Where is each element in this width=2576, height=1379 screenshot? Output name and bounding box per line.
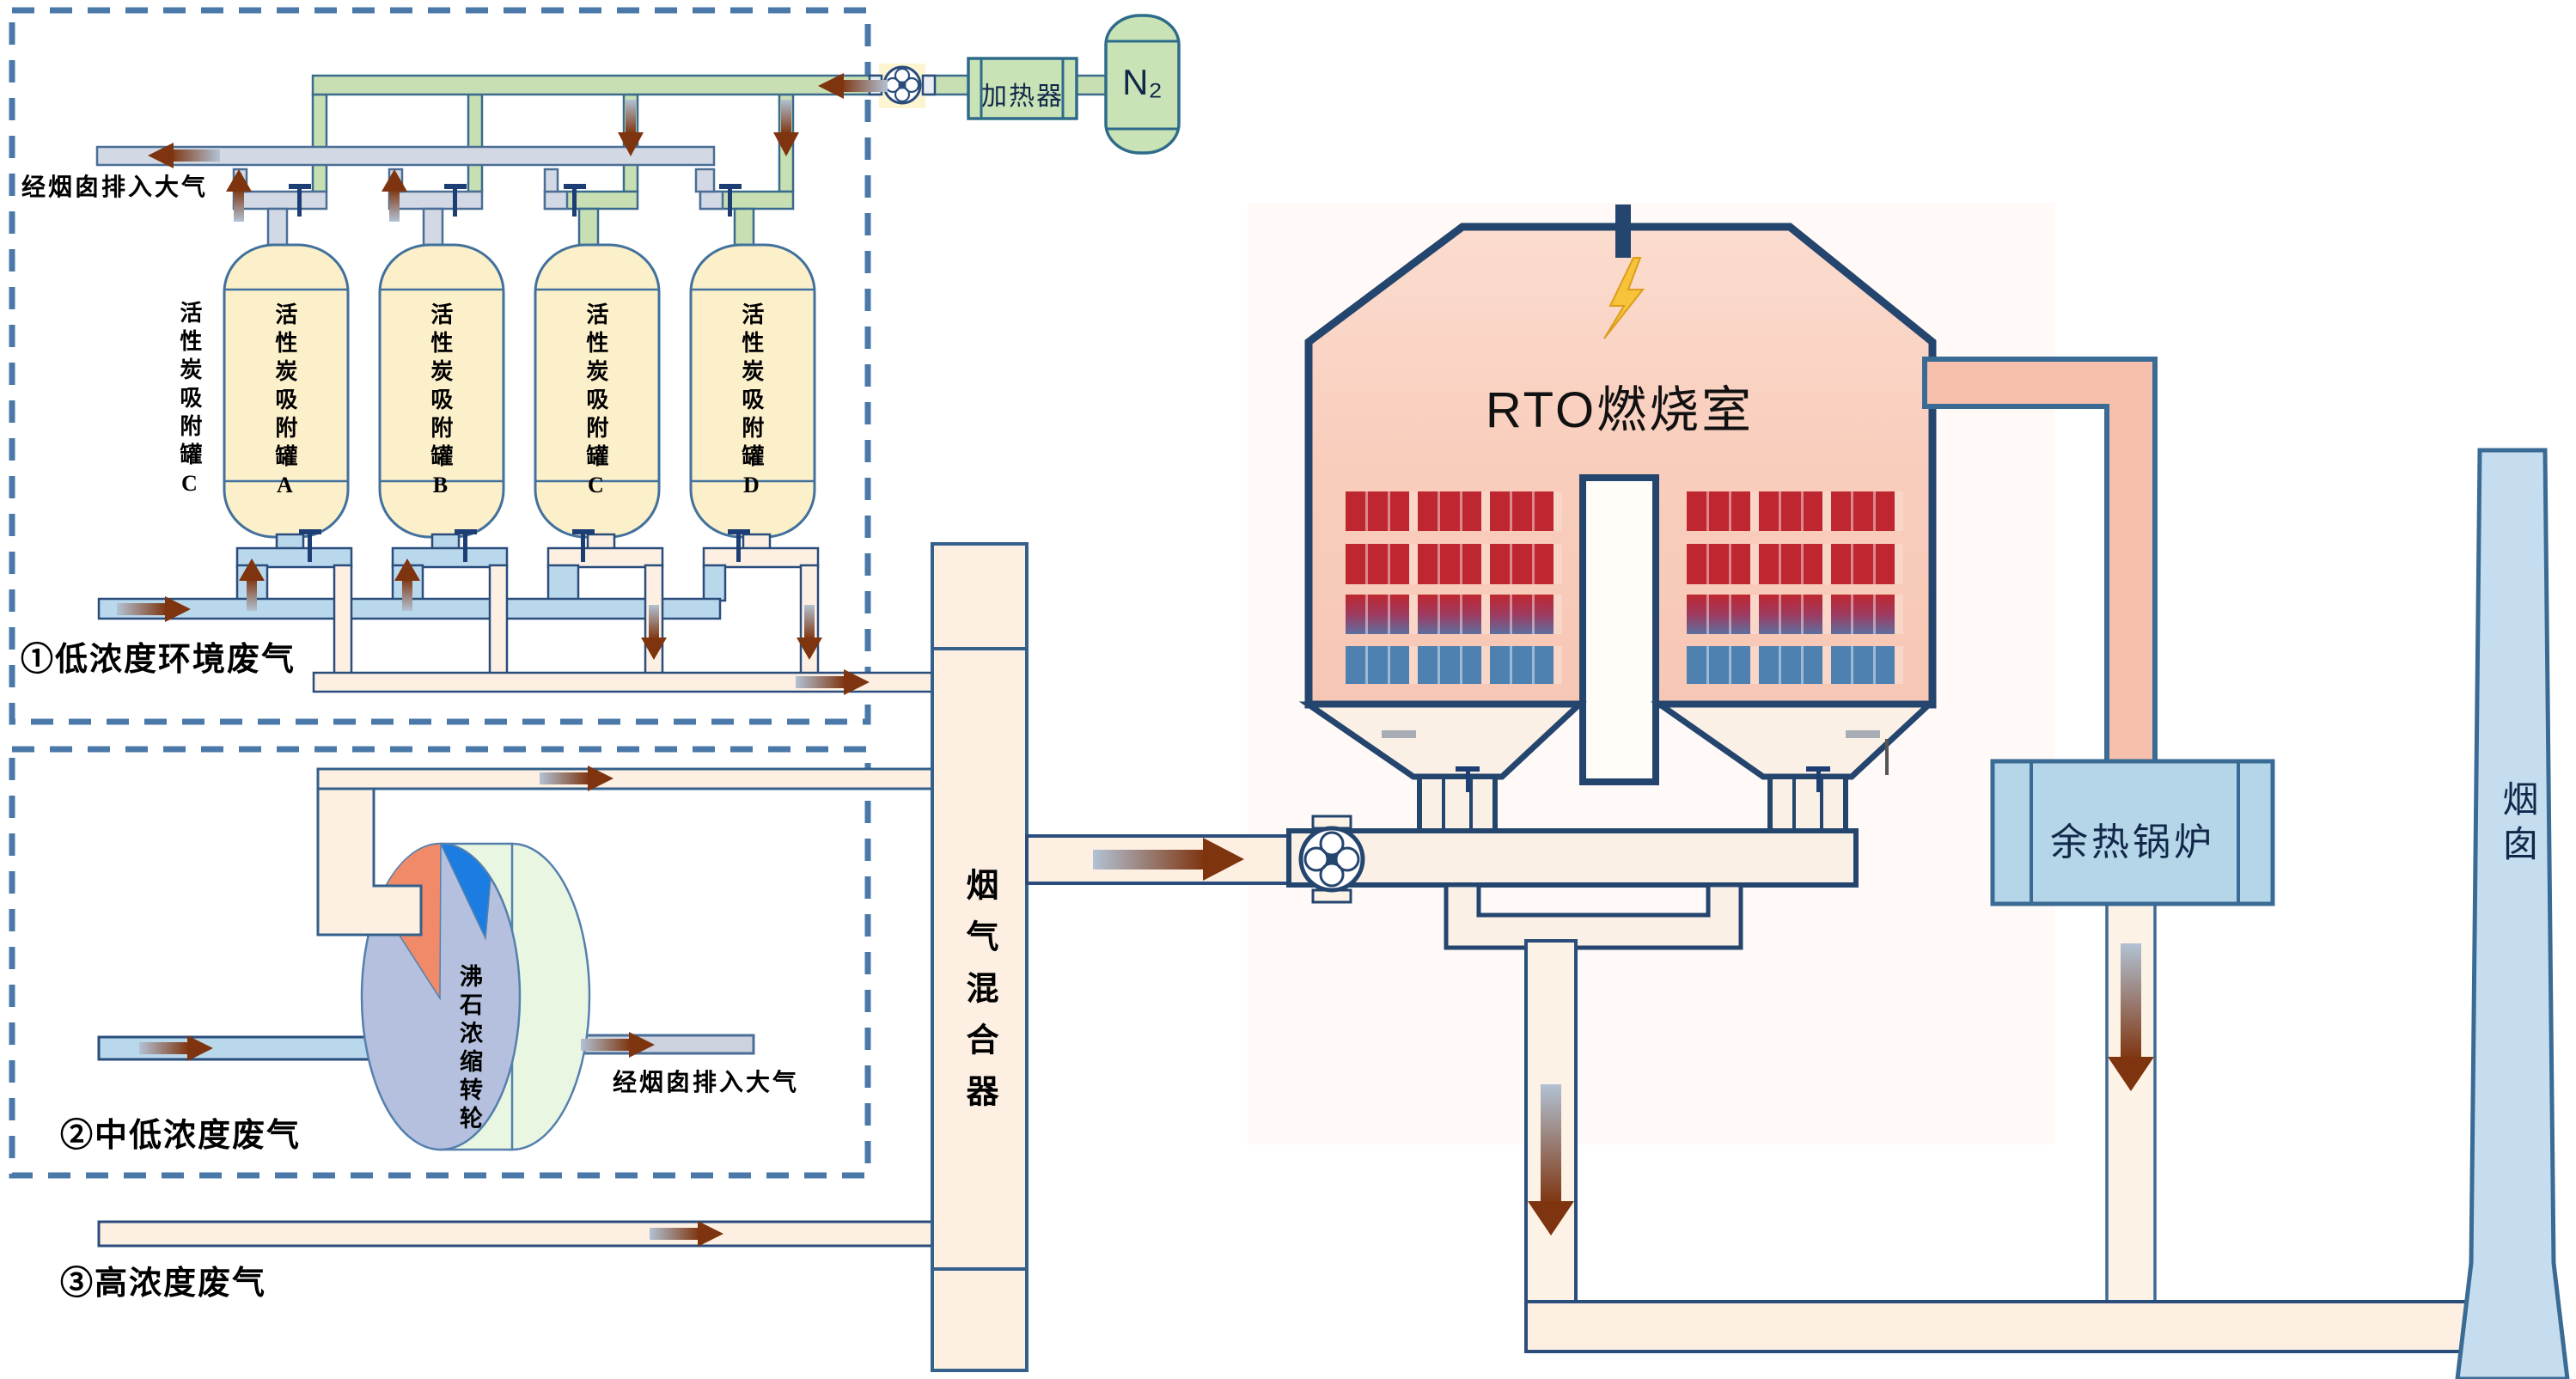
n2-tank-pipe [1077, 76, 1106, 95]
rto-burner-stub [1615, 204, 1631, 258]
section-high-label: ③高浓度废气 [60, 1256, 266, 1303]
hopper-riser-left [1419, 777, 1495, 833]
mixer-label: 烟气混合器 [955, 868, 1003, 1151]
rto-central-channel [1583, 478, 1656, 782]
hopper-mark-right [1846, 730, 1880, 738]
n2-tank-label: N₂ [1106, 62, 1179, 103]
rto-chamber [1289, 204, 1932, 948]
zeolite-rotor-assembly [99, 769, 932, 1150]
tank-a-label: 活性炭吸附罐A [272, 302, 297, 526]
chimney-stack [2457, 450, 2567, 1379]
section-mid-label: ②中低浓度废气 [60, 1108, 301, 1156]
process-diagram: 经烟囱排入大气 ①低浓度环境废气 活性炭吸附罐C 活性炭吸附罐A 活性炭吸附罐B… [0, 0, 2576, 1379]
chimney-label: 烟囱 [2492, 780, 2544, 892]
rotor-label: 沸石浓缩转轮 [453, 964, 486, 1144]
rto-label: RTO燃烧室 [1426, 369, 1813, 442]
exhaust-to-chimney-label-2: 经烟囱排入大气 [613, 1064, 799, 1098]
carbon-tanks [224, 245, 815, 537]
boiler-label: 余热锅炉 [2005, 811, 2260, 866]
tank-top-junctions [234, 192, 793, 245]
tank-c-label: 活性炭吸附罐C [583, 302, 608, 526]
diagram-canvas [0, 0, 2576, 1379]
tank-bottom-junctions [237, 534, 818, 567]
section-low-label: ①低浓度环境废气 [21, 632, 296, 680]
tank-b-label: 活性炭吸附罐B [427, 302, 453, 526]
hopper-mark-left [1382, 730, 1416, 738]
high-concentration-pipe [99, 1222, 932, 1246]
hopper-riser-right [1770, 777, 1846, 833]
n2-drop-b [468, 95, 482, 192]
n2-drop-a [313, 95, 327, 192]
rto-bottom-duct [1289, 831, 1856, 885]
tank-d-label: 活性炭吸附罐D [738, 302, 764, 526]
stray-tank-label: 活性炭吸附罐C [176, 301, 202, 524]
heater-label: 加热器 [980, 75, 1065, 113]
valve-icon [289, 184, 750, 562]
exhaust-to-chimney-label-1: 经烟囱排入大气 [21, 168, 208, 203]
bottom-collection-pipe [1526, 1302, 2497, 1352]
rotor-to-mixer-pipe [318, 769, 932, 789]
